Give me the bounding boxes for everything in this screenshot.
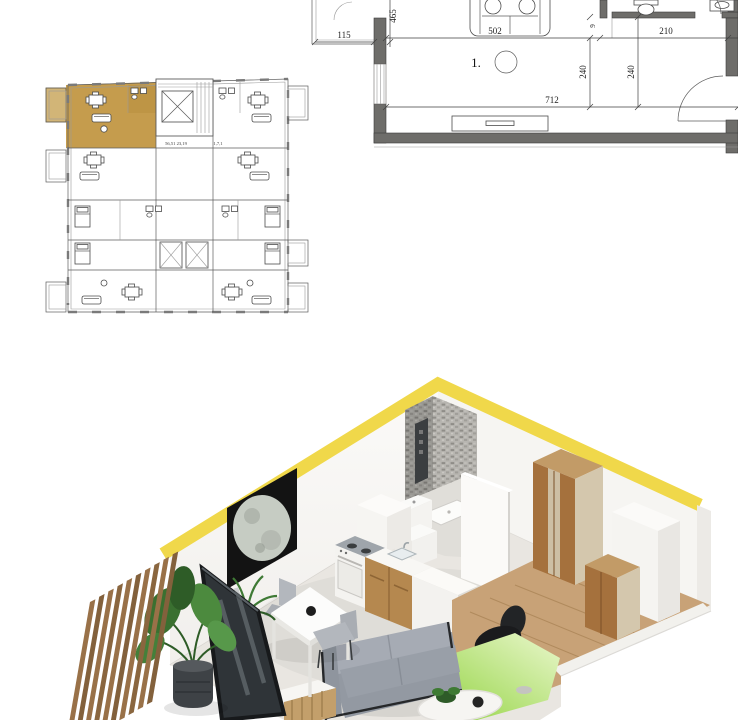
dim-entry-width: 210: [659, 26, 673, 36]
dim-balcony-width: 115: [337, 30, 351, 40]
apartment-3d-render: [64, 384, 738, 720]
dim-total-width: 712: [545, 95, 559, 105]
dim-balcony-depth: 465: [388, 9, 398, 23]
unit-area-annotation: 56,51 23,19: [165, 141, 188, 147]
plan-sideboard: [452, 116, 548, 131]
sink-fixture: [710, 0, 734, 11]
dim-depth-right: 240: [626, 65, 636, 79]
building-overview-plan: 56,51 23,19 1,7,1: [46, 79, 308, 312]
walls: [374, 0, 738, 153]
dim-wall-offset: 9: [589, 24, 597, 28]
scene-svg: 56,51 23,19 1,7,1: [0, 0, 738, 720]
wood-slat-screen: [64, 552, 178, 720]
service-core: [160, 242, 208, 268]
table-decor: [306, 606, 316, 616]
room-number-label: 1.: [471, 55, 481, 70]
wardrobe-small: [585, 554, 640, 640]
stair-core: [156, 79, 213, 136]
composite-listing-image: 56,51 23,19 1,7,1: [0, 0, 738, 720]
plan-sofa: [470, 0, 550, 36]
dim-depth-left: 240: [578, 65, 588, 79]
ceiling-lamp-symbol: [495, 51, 517, 73]
shower-panel: [415, 418, 428, 484]
unit-area-annotation-2: 1,7,1: [213, 141, 223, 147]
detail-floorplan: 1. 115 465 502 9 210 240 240 712: [312, 0, 738, 153]
entry-door: [678, 76, 726, 121]
window: [374, 64, 386, 104]
rug-decor: [516, 686, 532, 694]
dim-sofa-wall: 502: [488, 26, 502, 36]
